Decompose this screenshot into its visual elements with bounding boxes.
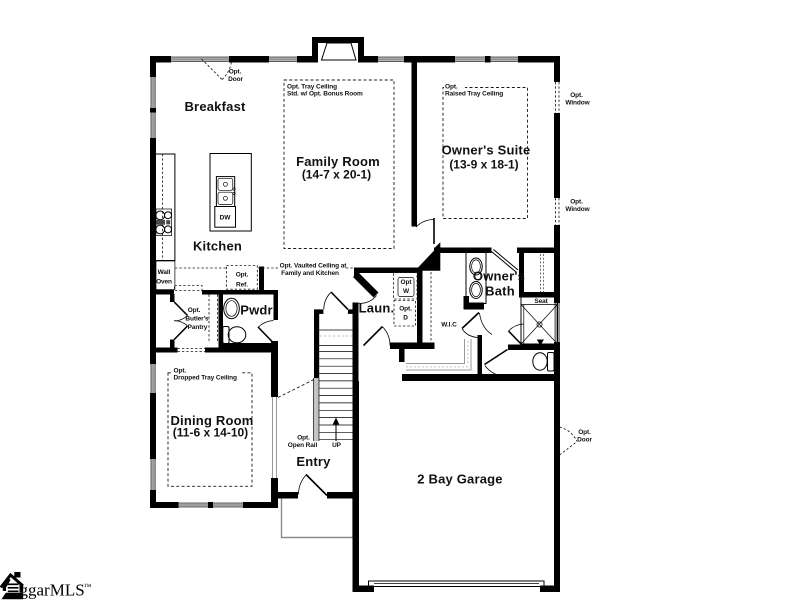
svg-text:Window: Window: [565, 206, 590, 213]
svg-text:Ref.: Ref.: [236, 282, 248, 289]
svg-text:Seat: Seat: [534, 298, 548, 305]
svg-text:ggarMLS: ggarMLS: [20, 581, 85, 600]
svg-text:Entry: Entry: [296, 454, 331, 469]
svg-text:Opt.: Opt.: [297, 435, 310, 442]
svg-text:Dropped Tray Ceiling: Dropped Tray Ceiling: [174, 375, 238, 382]
svg-text:(11-6 x 14-10): (11-6 x 14-10): [173, 426, 248, 440]
svg-text:Raised Tray Ceiling: Raised Tray Ceiling: [445, 91, 503, 98]
svg-text:Opt.: Opt.: [399, 306, 412, 313]
svg-text:Oven: Oven: [156, 279, 172, 286]
svg-text:2 Bay Garage: 2 Bay Garage: [417, 472, 503, 487]
svg-text:Std. w/ Opt. Bonus Room: Std. w/ Opt. Bonus Room: [287, 91, 363, 98]
svg-text:™: ™: [84, 582, 92, 591]
svg-text:Opt.: Opt.: [445, 84, 458, 91]
svg-text:Wall: Wall: [158, 269, 171, 276]
svg-text:Opt: Opt: [401, 279, 413, 286]
svg-text:Butler's: Butler's: [185, 316, 209, 323]
svg-text:W.I.C: W.I.C: [441, 322, 457, 329]
svg-text:Door: Door: [228, 76, 243, 83]
svg-text:Door: Door: [577, 437, 592, 444]
svg-text:Opt.: Opt.: [236, 272, 249, 279]
svg-text:Pwdr: Pwdr: [240, 303, 273, 318]
svg-text:Open Rail: Open Rail: [288, 442, 318, 449]
svg-text:Opt.: Opt.: [570, 92, 583, 99]
svg-text:Opt. Vaulted Ceiling at: Opt. Vaulted Ceiling at: [280, 263, 348, 270]
svg-text:W: W: [403, 288, 410, 295]
svg-text:Opt.: Opt.: [578, 429, 591, 436]
svg-text:D: D: [403, 315, 408, 322]
svg-text:Opt.: Opt.: [229, 69, 242, 76]
svg-text:Opt. Tray Ceiling: Opt. Tray Ceiling: [287, 84, 337, 91]
svg-text:(13-9 x 18-1): (13-9 x 18-1): [449, 158, 518, 172]
svg-text:Family and Kitchen: Family and Kitchen: [281, 270, 339, 277]
svg-text:Pantry: Pantry: [188, 324, 208, 331]
svg-text:Owner's: Owner's: [473, 269, 525, 284]
svg-text:Bath: Bath: [485, 284, 515, 299]
svg-text:Window: Window: [565, 100, 590, 107]
svg-text:(14-7 x 20-1): (14-7 x 20-1): [302, 168, 371, 182]
svg-text:UP: UP: [332, 442, 342, 449]
svg-text:Opt.: Opt.: [570, 199, 583, 206]
svg-text:Laun.: Laun.: [359, 301, 395, 316]
svg-text:Owner's Suite: Owner's Suite: [442, 143, 531, 158]
svg-text:Breakfast: Breakfast: [184, 99, 246, 114]
svg-text:Opt.: Opt.: [174, 368, 187, 375]
svg-text:Kitchen: Kitchen: [193, 239, 242, 254]
svg-text:DW: DW: [220, 215, 232, 222]
svg-text:Opt.: Opt.: [188, 307, 201, 314]
